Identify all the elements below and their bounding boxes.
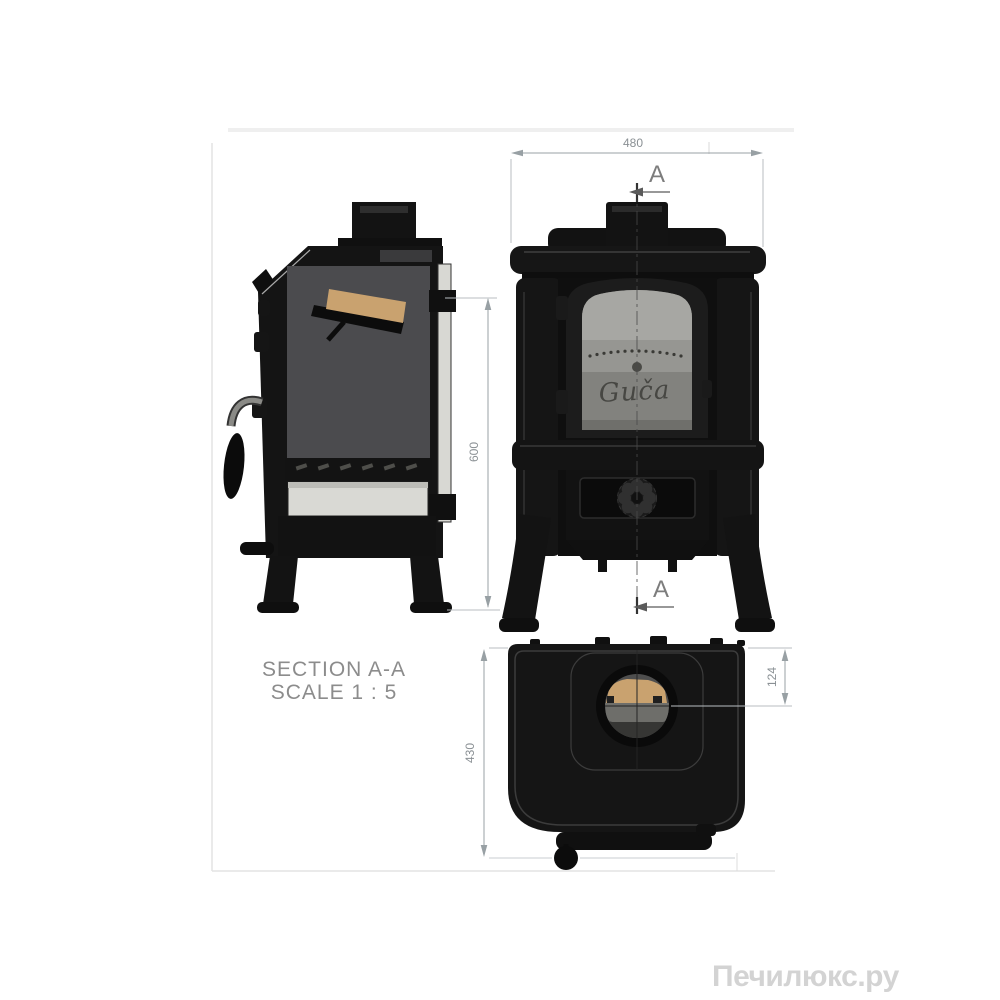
top-plan-view bbox=[508, 636, 745, 870]
front-skirt bbox=[566, 540, 709, 560]
section-marker-top: A bbox=[629, 161, 670, 202]
skirt-tab-left bbox=[598, 560, 607, 572]
technical-drawing-svg: Guča bbox=[0, 0, 1000, 1000]
scale-text: SCALE 1 : 5 bbox=[271, 681, 398, 704]
stove-top-plate bbox=[510, 246, 766, 274]
glass-logo-text: Guča bbox=[598, 375, 671, 409]
side-section-view bbox=[221, 202, 456, 613]
front-view: Guča bbox=[499, 186, 775, 632]
section-marker-top-text: A bbox=[649, 161, 665, 188]
section-marker-bottom-text: A bbox=[653, 576, 669, 603]
section-foot-rear bbox=[410, 602, 452, 613]
left-column bbox=[516, 278, 562, 556]
smoke-chamber bbox=[380, 250, 432, 262]
dim-top-depth-text: 430 bbox=[463, 743, 477, 763]
front-foot-left bbox=[499, 618, 539, 632]
section-arrow-bottom bbox=[633, 603, 647, 612]
scan-smudge bbox=[228, 128, 794, 132]
front-edge-bump-1 bbox=[258, 300, 270, 316]
section-foot-front bbox=[257, 602, 299, 613]
door-bracket-upper bbox=[429, 290, 456, 312]
section-leg-rear bbox=[410, 556, 444, 604]
door-hinge-upper bbox=[556, 296, 568, 320]
front-leg-left bbox=[502, 514, 551, 620]
door-latch-front bbox=[702, 380, 712, 398]
front-leg-right bbox=[723, 514, 772, 620]
dim-flue-offset-text: 124 bbox=[765, 667, 779, 687]
section-marker-bottom: A bbox=[633, 576, 674, 614]
flue-collar-opening bbox=[360, 206, 408, 213]
section-title-text: SECTION A-A bbox=[262, 658, 406, 681]
watermark-text: Печилюкс.ру bbox=[712, 960, 900, 993]
front-edge-bar bbox=[556, 832, 712, 850]
skirt-tab-right bbox=[668, 560, 677, 572]
front-bar-hook bbox=[696, 824, 716, 836]
front-foot-right bbox=[735, 618, 775, 632]
front-edge-bump-2 bbox=[254, 332, 269, 352]
ash-pan-lip bbox=[288, 482, 428, 488]
control-ledge bbox=[512, 440, 764, 470]
ash-door-lever bbox=[240, 542, 274, 555]
dim-front-height-text: 600 bbox=[467, 442, 481, 462]
title-block: SECTION A-A SCALE 1 : 5 bbox=[262, 658, 406, 704]
section-leg-front bbox=[263, 556, 298, 604]
dim-front-width-text: 480 bbox=[623, 136, 643, 150]
right-column bbox=[713, 278, 759, 556]
door-hinge-lower bbox=[556, 390, 568, 414]
door-handle bbox=[221, 432, 248, 500]
dim-front-height: 600 bbox=[445, 298, 500, 610]
handle-knob-top-view bbox=[554, 846, 578, 870]
stove-technical-drawing-page: Guča bbox=[0, 0, 1000, 1000]
stove-base-section bbox=[278, 516, 436, 558]
